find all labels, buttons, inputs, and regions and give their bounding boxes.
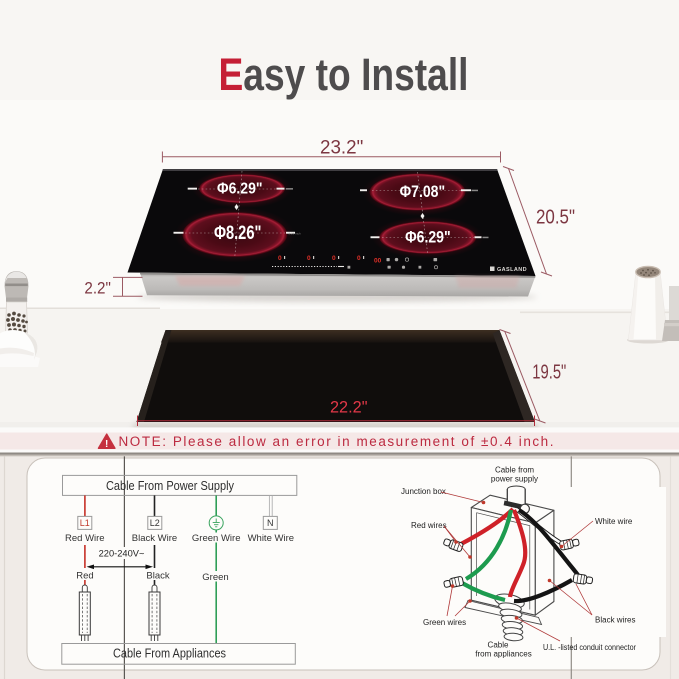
svg-text:Φ7.08": Φ7.08" — [400, 183, 446, 201]
svg-text:22.2": 22.2" — [330, 398, 368, 417]
svg-text:Cable From Appliances: Cable From Appliances — [113, 647, 226, 661]
svg-text:0: 0 — [357, 255, 361, 262]
svg-text:Φ6.29": Φ6.29" — [405, 227, 451, 246]
svg-text:Green wires: Green wires — [423, 618, 466, 627]
svg-text:0: 0 — [332, 255, 336, 262]
svg-text:U.L. -listed conduit connector: U.L. -listed conduit connector — [543, 643, 636, 652]
svg-text:Φ8.26": Φ8.26" — [214, 223, 262, 244]
svg-text:Red Wire: Red Wire — [65, 533, 105, 544]
svg-text:Green: Green — [202, 572, 228, 583]
svg-text:Black Wire: Black Wire — [132, 533, 177, 544]
svg-text:White wire: White wire — [595, 517, 633, 526]
svg-text:20.5": 20.5" — [536, 206, 575, 228]
svg-text:Cable: Cable — [488, 641, 509, 650]
svg-text:0: 0 — [307, 255, 311, 262]
svg-text:from appliances: from appliances — [475, 650, 531, 659]
svg-text:White Wire: White Wire — [248, 533, 294, 544]
svg-text:00: 00 — [374, 258, 382, 265]
svg-text:GASLAND: GASLAND — [497, 267, 527, 273]
svg-text:19.5": 19.5" — [532, 362, 566, 384]
svg-text:N: N — [267, 518, 274, 528]
svg-text:23.2": 23.2" — [320, 137, 363, 158]
svg-text:0: 0 — [278, 255, 282, 262]
svg-text:L1: L1 — [80, 518, 90, 528]
svg-text:8.26 inch: 8.26 inch — [289, 231, 302, 235]
svg-text:NOTE: Please allow an error in: NOTE: Please allow an error in measureme… — [119, 434, 554, 449]
svg-text:!: ! — [105, 439, 108, 450]
svg-text:Easy to Install: Easy to Install — [219, 49, 469, 100]
svg-text:Junction box: Junction box — [401, 487, 446, 496]
svg-text:Cable From Power Supply: Cable From Power Supply — [106, 479, 235, 493]
svg-text:Cable from: Cable from — [495, 466, 534, 475]
svg-text:power supply: power supply — [491, 475, 538, 484]
svg-text:Black wires: Black wires — [595, 616, 635, 625]
svg-text:Red: Red — [76, 570, 93, 581]
svg-text:Black: Black — [146, 570, 169, 581]
svg-text:Red wires: Red wires — [411, 521, 447, 530]
svg-text:L2: L2 — [150, 518, 160, 528]
svg-text:2.2": 2.2" — [84, 278, 111, 297]
svg-text:Green Wire: Green Wire — [192, 533, 241, 544]
svg-text:220-240V~: 220-240V~ — [99, 549, 145, 559]
svg-text:Φ6.29": Φ6.29" — [217, 181, 263, 198]
